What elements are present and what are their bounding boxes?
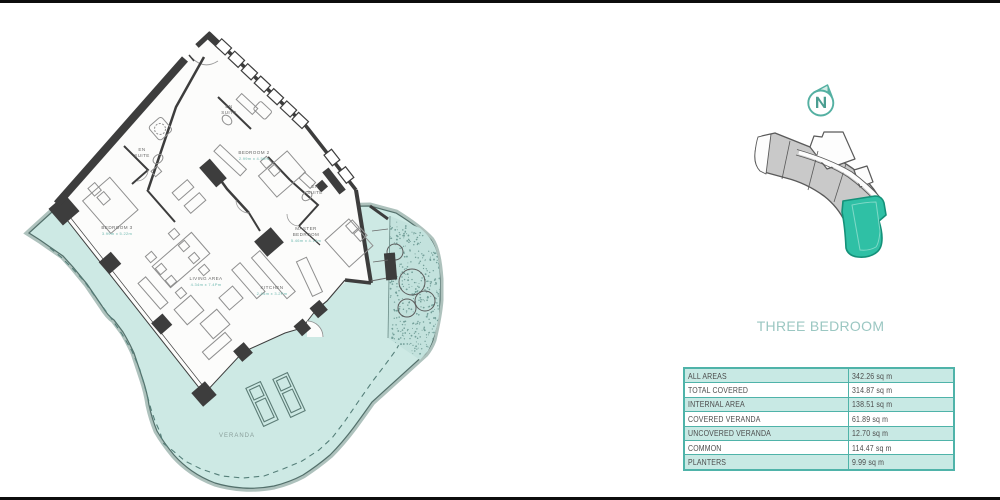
svg-text:SUITE: SUITE xyxy=(307,190,323,195)
svg-text:5.46m x 4.12m: 5.46m x 4.12m xyxy=(291,238,322,243)
svg-text:EN: EN xyxy=(225,104,232,109)
svg-text:KITCHEN: KITCHEN xyxy=(261,285,284,290)
svg-text:4.34m x 7.4Pm: 4.34m x 7.4Pm xyxy=(191,282,222,287)
svg-text:BEDROOM 3: BEDROOM 3 xyxy=(101,225,132,230)
svg-text:3.99m x 5.22m: 3.99m x 5.22m xyxy=(102,231,133,236)
svg-text:EN: EN xyxy=(138,147,145,152)
svg-text:BEDROOM: BEDROOM xyxy=(293,232,320,237)
svg-text:SUITE: SUITE xyxy=(134,153,150,158)
svg-text:2.99m x 4.50m: 2.99m x 4.50m xyxy=(239,156,270,161)
svg-text:MASTER: MASTER xyxy=(295,226,317,231)
svg-text:VERANDA: VERANDA xyxy=(219,433,255,439)
svg-text:LIVING AREA: LIVING AREA xyxy=(190,276,224,281)
svg-text:BEDROOM 2: BEDROOM 2 xyxy=(238,150,269,155)
svg-text:2.44m x 3.2Pm: 2.44m x 3.2Pm xyxy=(257,291,288,296)
svg-text:EN: EN xyxy=(311,184,318,189)
svg-text:SUITE: SUITE xyxy=(221,110,237,115)
